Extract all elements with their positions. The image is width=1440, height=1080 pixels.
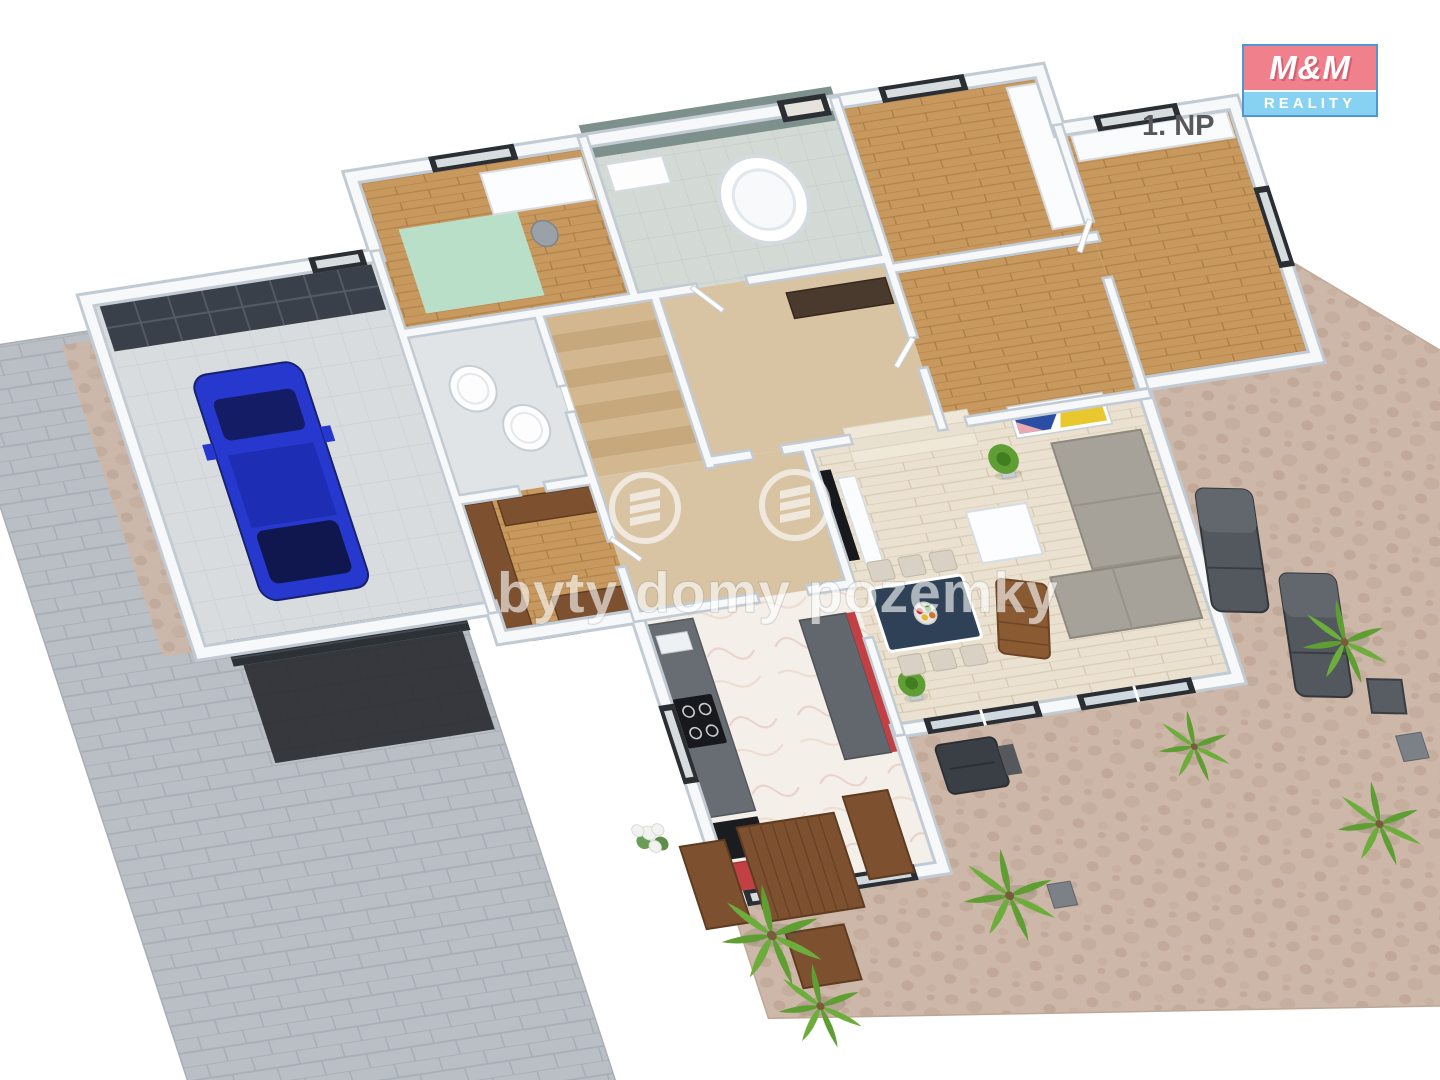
brand-logo: M&M REALITY xyxy=(1242,44,1378,117)
brand-logo-text-reality: REALITY xyxy=(1264,95,1356,112)
side-table xyxy=(1367,679,1406,713)
brand-logo-top: M&M xyxy=(1244,46,1376,90)
floorplan-scene: byty domy pozemky xyxy=(0,0,1440,1080)
flower-bush xyxy=(630,821,671,855)
brand-logo-text-mm: M&M xyxy=(1269,49,1351,87)
floor-label: 1. NP xyxy=(1142,110,1215,143)
brand-logo-bottom: REALITY xyxy=(1244,90,1376,115)
watermark-text: byty domy pozemky xyxy=(497,561,1059,625)
plan-group xyxy=(0,0,1440,1080)
floorplan-render: byty domy pozemky M&M REALITY 1. NP xyxy=(0,0,1440,1080)
